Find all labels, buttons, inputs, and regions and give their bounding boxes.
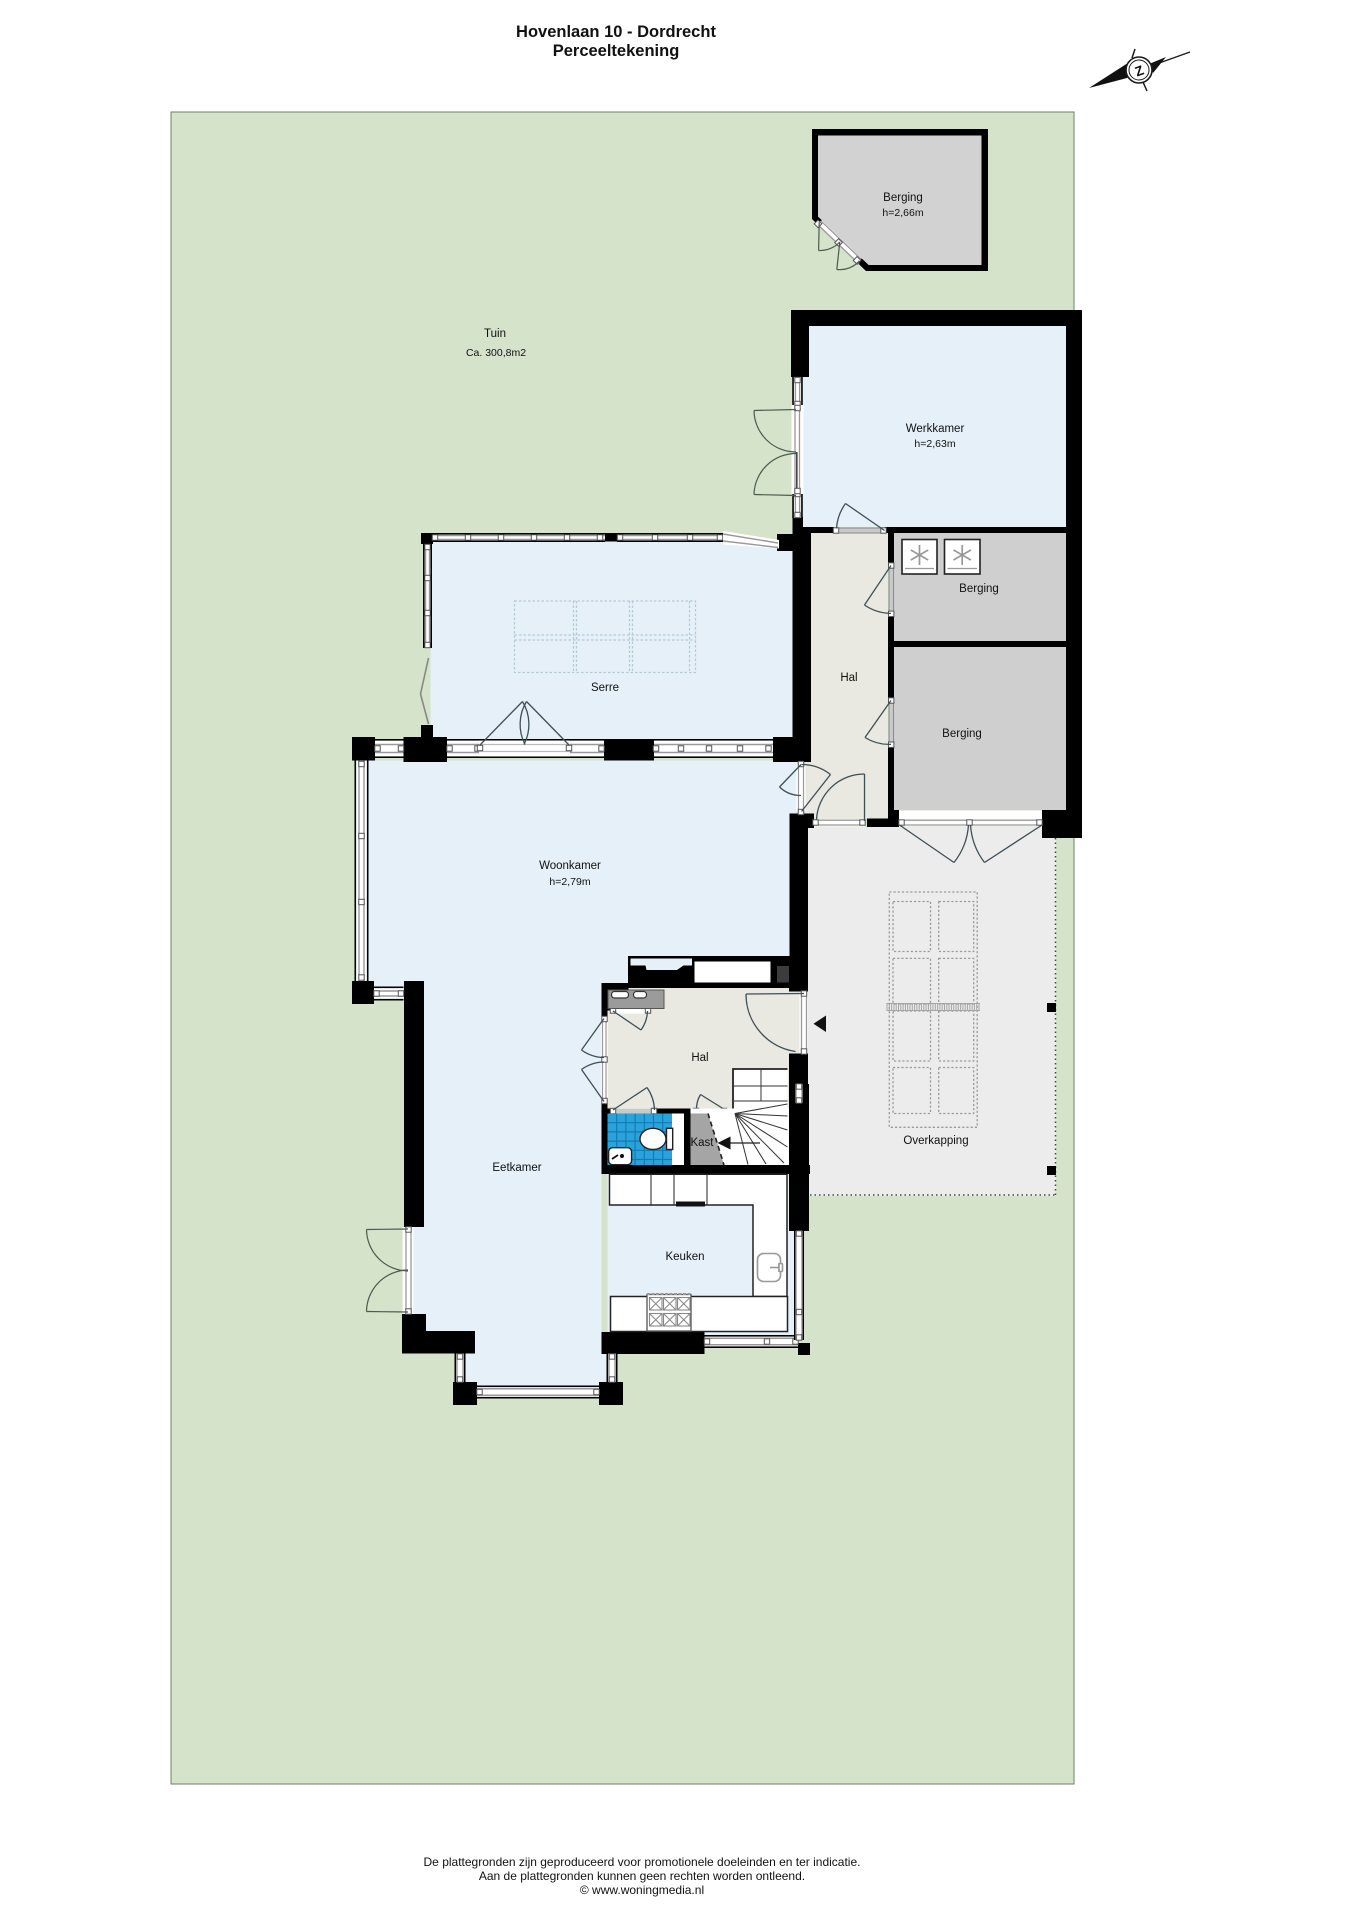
svg-text:Berging: Berging — [942, 728, 982, 740]
svg-text:h=2,63m: h=2,63m — [914, 438, 955, 450]
svg-text:Keuken: Keuken — [665, 1251, 704, 1263]
svg-text:h=2,66m: h=2,66m — [882, 207, 923, 219]
svg-text:Aan de plattegronden kunnen ge: Aan de plattegronden kunnen geen rechten… — [479, 1869, 805, 1883]
svg-text:Kast: Kast — [690, 1137, 714, 1149]
svg-text:Berging: Berging — [883, 192, 923, 204]
svg-text:De plattegronden zijn geproduc: De plattegronden zijn geproduceerd voor … — [424, 1855, 861, 1869]
svg-text:Werkkamer: Werkkamer — [906, 423, 965, 435]
svg-text:h=2,79m: h=2,79m — [549, 876, 590, 888]
svg-text:Ca. 300,8m2: Ca. 300,8m2 — [466, 347, 526, 359]
svg-text:Berging: Berging — [959, 583, 999, 595]
svg-text:Hal: Hal — [691, 1052, 708, 1064]
svg-text:Perceeltekening: Perceeltekening — [553, 42, 680, 60]
svg-text:Hovenlaan 10 - Dordrecht: Hovenlaan 10 - Dordrecht — [516, 23, 716, 41]
svg-text:Serre: Serre — [591, 682, 619, 694]
svg-text:Hal: Hal — [840, 672, 857, 684]
svg-text:© www.woningmedia.nl: © www.woningmedia.nl — [580, 1883, 704, 1897]
svg-text:Tuin: Tuin — [484, 328, 506, 340]
svg-text:Overkapping: Overkapping — [903, 1135, 968, 1147]
svg-text:Woonkamer: Woonkamer — [539, 860, 601, 872]
svg-text:Eetkamer: Eetkamer — [492, 1162, 541, 1174]
